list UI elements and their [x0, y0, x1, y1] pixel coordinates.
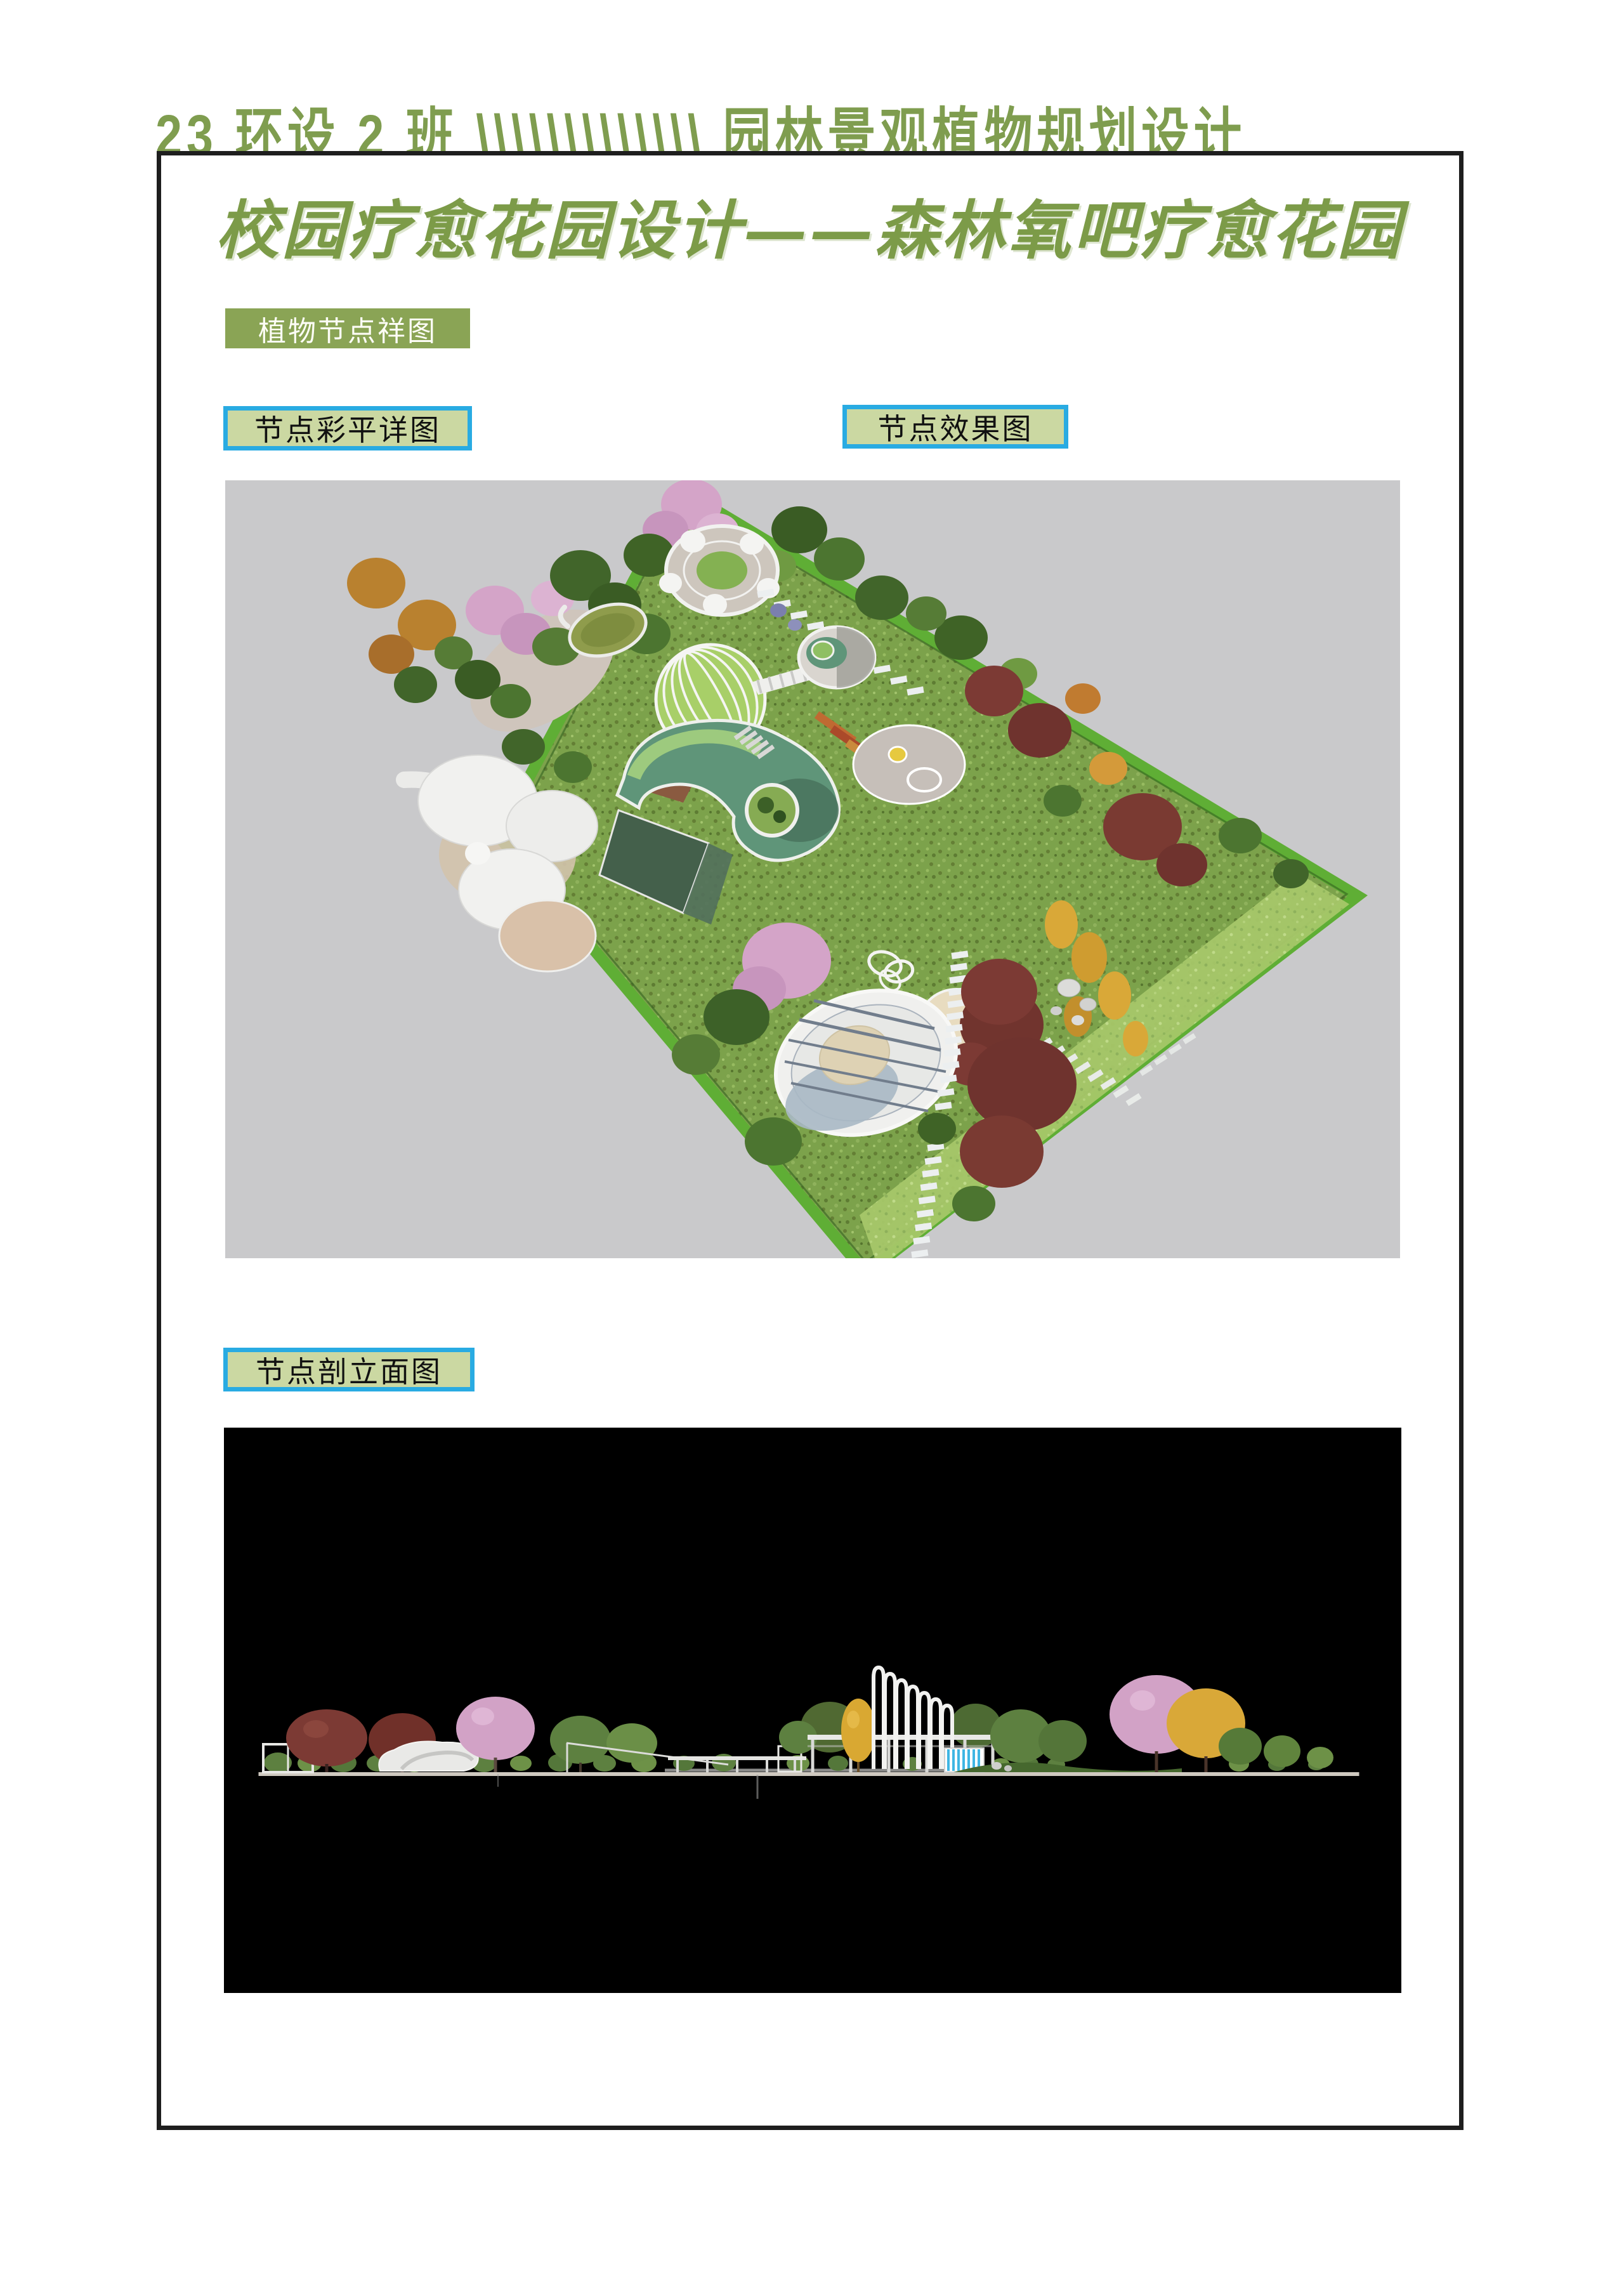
plant-node-label-text: 植物节点祥图 [258, 308, 437, 349]
aerial-render-svg [225, 480, 1400, 1258]
node-section-text: 节点剖立面图 [256, 1349, 442, 1391]
poster-page: { "page": { "header": "23 环设 2 班 \\\\\\\… [0, 0, 1624, 2295]
label-node-color-plan: 节点彩平详图 [223, 406, 472, 450]
board-title: 校园疗愈花园设计——森林氧吧疗愈花园 [216, 179, 1415, 271]
node-effect-text: 节点效果图 [878, 406, 1033, 448]
aerial-render-image [225, 480, 1400, 1258]
node-color-plan-text: 节点彩平详图 [254, 407, 441, 449]
section-elevation-image [224, 1428, 1401, 1993]
label-node-section-elevation: 节点剖立面图 [223, 1348, 475, 1391]
label-node-effect: 节点效果图 [842, 405, 1068, 449]
section-label-plant-node-detail: 植物节点祥图 [225, 308, 470, 348]
section-elevation-svg [224, 1428, 1401, 1993]
